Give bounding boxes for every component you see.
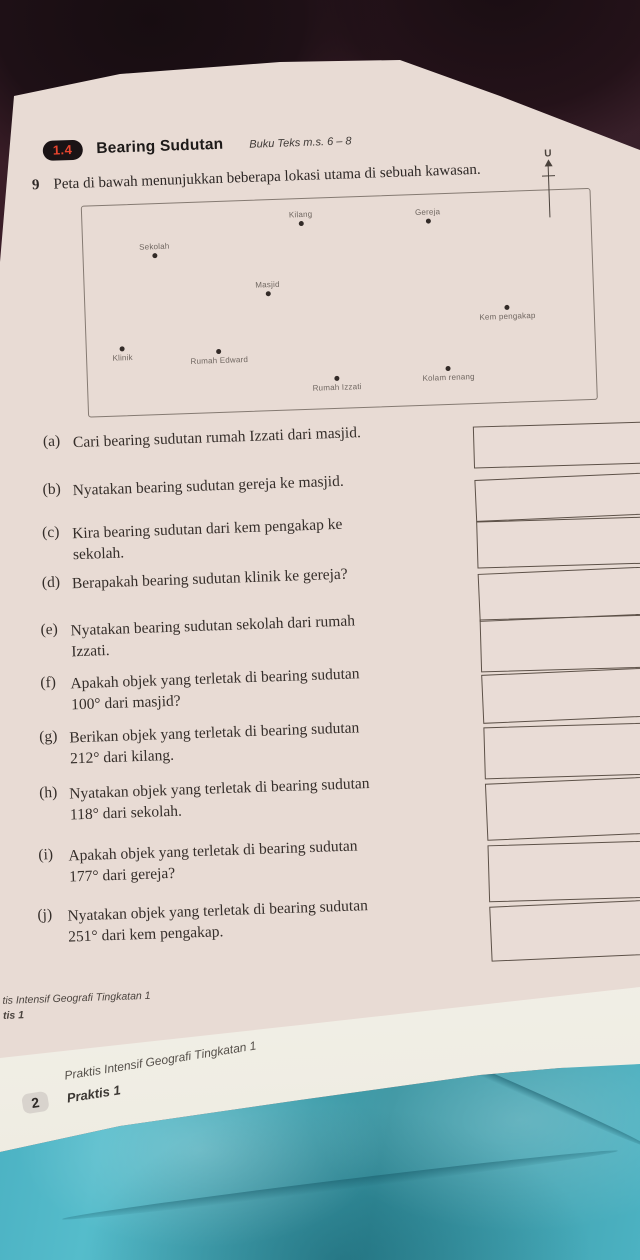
question-intro-text: Peta di bawah menunjukkan beberapa lokas… — [53, 162, 481, 193]
map-point-label: Sekolah — [139, 241, 170, 251]
answer-box-j — [489, 898, 640, 961]
map-point-dot — [216, 349, 221, 354]
question-text: Berapakah bearing sudutan klinik ke gere… — [72, 560, 460, 595]
map-point-sekolah: Sekolah — [139, 241, 170, 260]
question-d: (d) Berapakah bearing sudutan klinik ke … — [30, 560, 460, 596]
question-label: (b) — [42, 481, 61, 500]
question-label: (e) — [40, 621, 58, 640]
question-i: (i) Apakah objek yang terletak di bearin… — [39, 832, 470, 889]
question-label: (a) — [43, 433, 61, 452]
question-text: Nyatakan bearing sudutan gereja ke masji… — [72, 467, 456, 501]
answer-box-g — [483, 722, 640, 780]
map-point-label: Rumah Izzati — [312, 382, 361, 393]
worksheet-content: 1.4 Bearing Sudutan Buku Teks m.s. 6 – 8… — [14, 105, 640, 1127]
map-point-dot — [298, 220, 303, 225]
question-intro: 9Peta di bawah menunjukkan beberapa loka… — [32, 162, 481, 195]
map-point-label: Kilang — [289, 209, 313, 219]
map-point-kolam-renang: Kolam renang — [422, 363, 475, 383]
map-point-dot — [120, 346, 125, 351]
answer-box-e — [480, 614, 640, 673]
map-point-dot — [265, 291, 270, 296]
question-number: 9 — [32, 177, 40, 193]
map-point-dot — [152, 253, 157, 258]
question-f: (f) Apakah objek yang terletak di bearin… — [33, 660, 464, 717]
answer-box-d — [478, 565, 640, 621]
question-label: (j) — [37, 906, 52, 925]
question-b: (b) Nyatakan bearing sudutan gereja ke m… — [26, 467, 456, 503]
map-point-label: Rumah Edward — [190, 355, 248, 366]
map-point-rumah-izzati: Rumah Izzati — [312, 373, 362, 393]
map-point-kilang: Kilang — [289, 209, 313, 228]
map-point-masjid: Masjid — [255, 280, 280, 299]
photo-scene: Praktis Intensif Geografi Tingkatan 1 2 … — [0, 0, 640, 1260]
question-label: (c) — [42, 524, 60, 543]
answer-box-a — [473, 421, 640, 469]
map-point-label: Kolam renang — [422, 372, 475, 383]
question-label: (g) — [39, 728, 58, 747]
map-point-dot — [505, 305, 510, 310]
question-label: (h) — [39, 784, 58, 803]
question-label: (i) — [38, 846, 53, 865]
section-number-badge: 1.4 — [42, 140, 82, 161]
map-point-rumah-edward: Rumah Edward — [190, 346, 248, 366]
answer-box-c — [476, 516, 640, 569]
map-point-label: Klinik — [112, 353, 133, 363]
answer-box-i — [487, 840, 640, 903]
section-header: 1.4 Bearing Sudutan Buku Teks m.s. 6 – 8 — [42, 130, 351, 161]
map-point-klinik: Klinik — [112, 344, 133, 363]
question-text: Cari bearing sudutan rumah Izzati dari m… — [73, 419, 456, 453]
textbook-reference: Buku Teks m.s. 6 – 8 — [249, 135, 352, 151]
map-point-kem-pengakap: Kem pengakap — [479, 302, 536, 322]
question-h: (h) Nyatakan objek yang terletak di bear… — [37, 770, 468, 827]
question-g: (g) Berikan objek yang terletak di beari… — [35, 714, 466, 771]
page-number-badge: 2 — [21, 1091, 50, 1115]
question-c: (c) Kira bearing sudutan dari kem pengak… — [28, 510, 459, 567]
map-point-dot — [334, 376, 339, 381]
location-map: U Kilang Gereja Sekolah Masjid — [81, 188, 598, 418]
question-label: (d) — [42, 574, 61, 593]
answer-box-h — [485, 775, 640, 840]
map-point-label: Kem pengakap — [479, 311, 535, 322]
answer-box-f — [481, 666, 640, 723]
question-j: (j) Nyatakan objek yang terletak di bear… — [41, 892, 472, 949]
map-point-dot — [425, 218, 430, 223]
map-point-label: Masjid — [255, 280, 280, 290]
footer-section: tis 1 — [3, 1005, 151, 1022]
section-title: Bearing Sudutan — [96, 136, 224, 158]
north-arrow-icon — [548, 161, 551, 217]
north-label: U — [544, 148, 552, 159]
map-point-label: Gereja — [415, 207, 441, 217]
question-a: (a) Cari bearing sudutan rumah Izzati da… — [25, 419, 455, 455]
footer-book-title: tis Intensif Geografi Tingkatan 1 — [2, 990, 150, 1007]
answer-box-b — [474, 472, 640, 522]
worksheet-footer: tis Intensif Geografi Tingkatan 1 tis 1 — [2, 990, 151, 1022]
question-e: (e) Nyatakan bearing sudutan sekolah dar… — [31, 607, 462, 664]
north-arrow: U — [544, 148, 554, 217]
map-point-gereja: Gereja — [415, 207, 441, 226]
question-label: (f) — [40, 674, 56, 693]
map-point-dot — [446, 366, 451, 371]
